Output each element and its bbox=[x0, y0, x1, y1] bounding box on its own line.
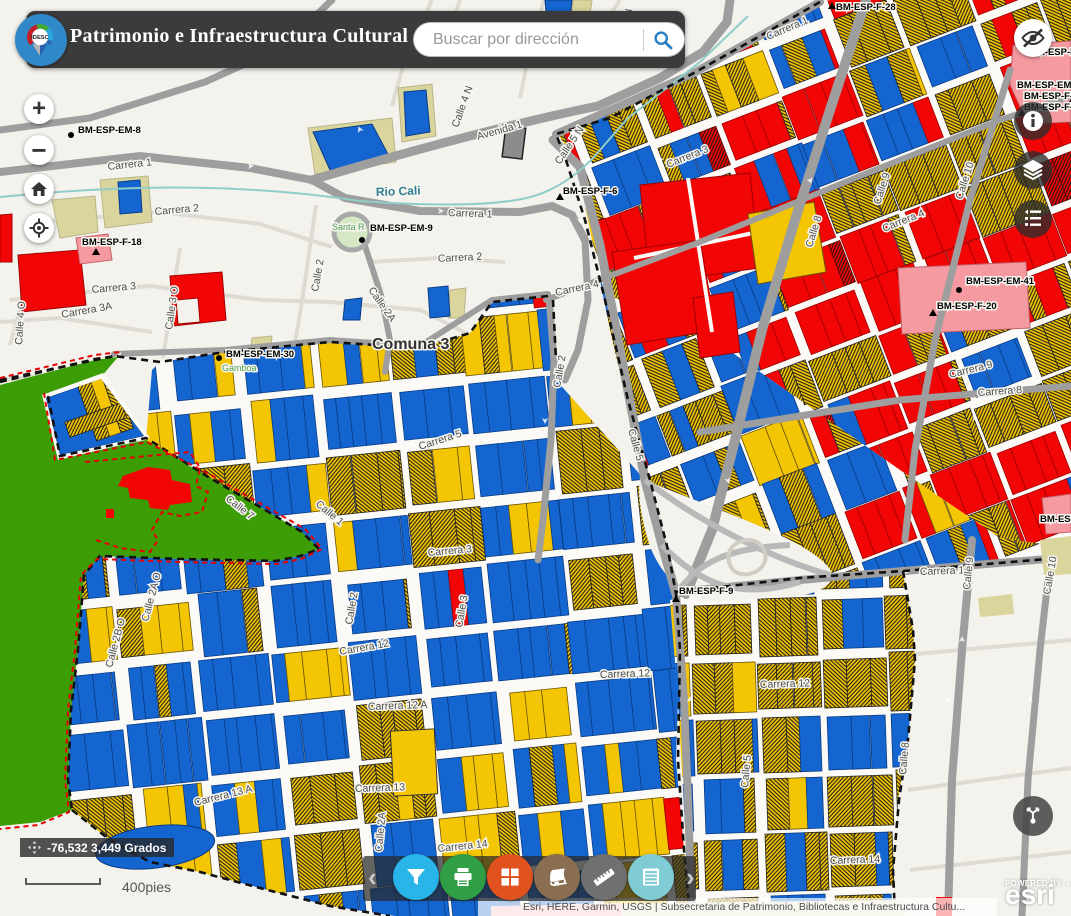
svg-text:Gamboa: Gamboa bbox=[222, 363, 257, 373]
svg-text:BM-ESP-F-20: BM-ESP-F-20 bbox=[937, 301, 997, 312]
svg-text:BM-ESP-F-28: BM-ESP-F-28 bbox=[836, 2, 896, 13]
svg-text:BM-ESP-F-19: BM-ESP-F-19 bbox=[1024, 91, 1071, 102]
svg-text:BM-ESP-F-1: BM-ESP-F-1 bbox=[1040, 514, 1071, 525]
svg-text:Rio Cali: Rio Cali bbox=[376, 183, 421, 199]
svg-text:IDESC: IDESC bbox=[31, 35, 50, 41]
svg-text:BM-ESP-F-9: BM-ESP-F-9 bbox=[679, 586, 733, 597]
svg-text:Comuna 3: Comuna 3 bbox=[372, 336, 449, 353]
svg-text:BM-ESP-EM-8: BM-ESP-EM-8 bbox=[78, 125, 141, 136]
svg-text:BM-ESP-EM-41: BM-ESP-EM-41 bbox=[966, 276, 1035, 287]
svg-text:Carrera 13: Carrera 13 bbox=[355, 781, 406, 795]
svg-text:Carrera 12: Carrera 12 bbox=[600, 667, 651, 681]
svg-text:BM-ESP-F-6: BM-ESP-F-6 bbox=[563, 186, 617, 197]
svg-text:BM-ESP-EM-30: BM-ESP-EM-30 bbox=[226, 349, 294, 360]
svg-text:BM-ESP-F-18: BM-ESP-F-18 bbox=[82, 237, 142, 248]
svg-text:Carrera 12: Carrera 12 bbox=[760, 677, 811, 691]
svg-text:Carrera 2: Carrera 2 bbox=[438, 251, 483, 265]
svg-text:Carrera 12 A: Carrera 12 A bbox=[368, 699, 428, 713]
svg-text:Santa R: Santa R bbox=[332, 222, 365, 232]
svg-text:BM-ESP-EM-40: BM-ESP-EM-40 bbox=[1017, 80, 1071, 91]
svg-text:BM-ESP-EM-9: BM-ESP-EM-9 bbox=[370, 223, 433, 234]
svg-text:Carrera 1: Carrera 1 bbox=[448, 207, 493, 221]
svg-text:Carrera 14: Carrera 14 bbox=[830, 853, 881, 867]
